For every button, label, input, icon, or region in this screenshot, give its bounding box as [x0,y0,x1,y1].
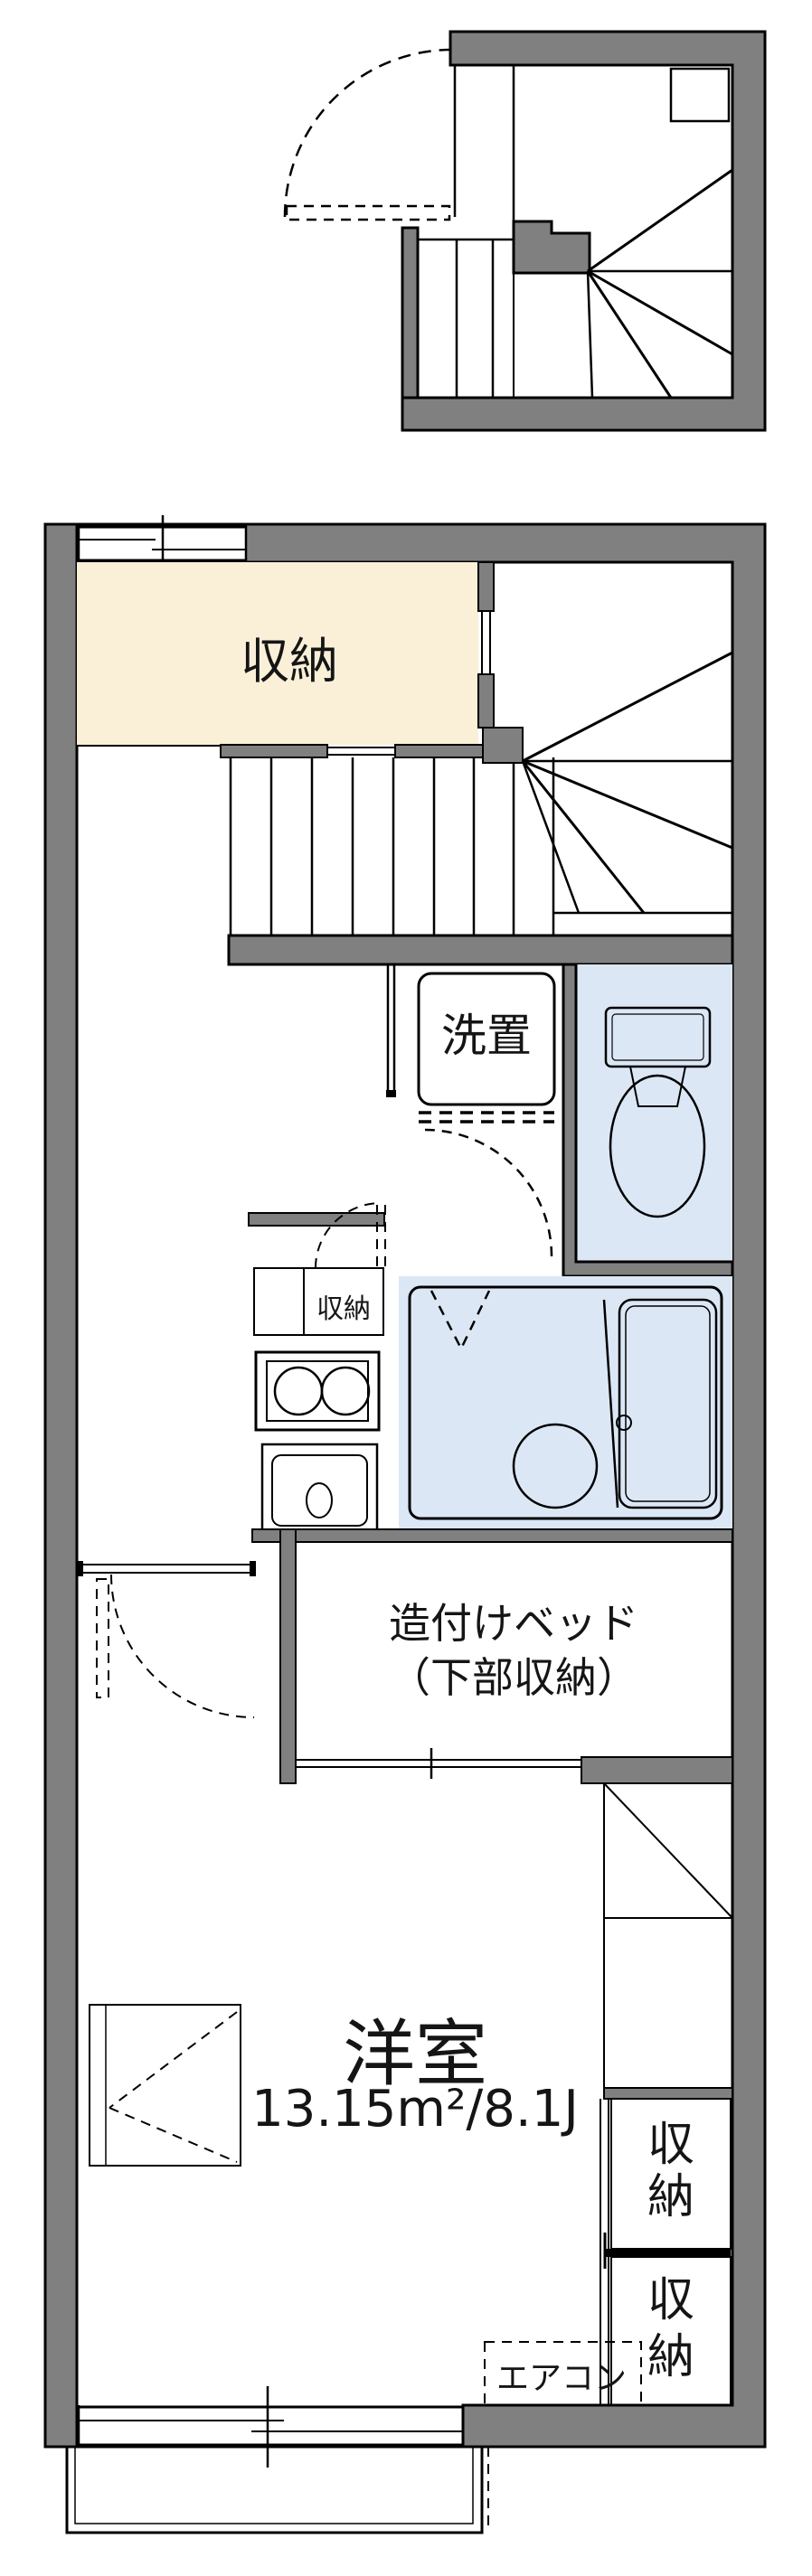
svg-text:納: 納 [647,2330,694,2384]
kitchen-top-wall [249,1213,384,1226]
entry-lower-left-wall [402,228,418,398]
stair-bottom-wall [229,935,732,964]
entrance-door-leaf [287,206,449,220]
closet-divider [604,2249,731,2257]
bay-window-box [90,2005,241,2166]
storage-right-wall-upper [478,562,494,611]
bed-label-line2: （下部収納） [389,1653,638,1702]
air-conditioner: エアコン [485,2342,641,2405]
washroom-left-wall [386,964,396,1097]
main-unit: 収納 [45,515,765,2533]
storage-right-wall-lower [478,674,494,728]
bathroom [399,1276,732,1529]
winder-steps [588,170,732,398]
entrance-door-swing-arc [285,50,452,217]
room-entry-opening [77,1561,256,1717]
closet-column: 収 納 収 納 [600,1783,732,2405]
room-door-swing-arc [111,1575,254,1717]
room-door-leaf [97,1579,109,1697]
bed-label-line1: 造付けベッド [389,1599,638,1648]
svg-text:納: 納 [647,2170,694,2224]
storage-room-label: 収納 [241,633,338,690]
laundry-label: 洗置 [441,1010,532,1062]
floorplan-page: { "document": { "type": "apartment-floor… [0,0,812,2576]
washroom-door-swing-arc [425,1130,552,1256]
stove [256,1352,379,1430]
closet-top-bar [604,2088,732,2099]
main-stair-newel [483,728,523,763]
stove-burner [275,1368,322,1415]
closet-diagonal [604,1783,732,1918]
kitchen-storage-label: 収納 [316,1293,371,1325]
kitchen-sink [262,1444,377,1534]
closet-upper-label: 収 [647,2118,694,2172]
stair-newel-block [514,221,590,273]
balcony [67,2447,488,2533]
left-outer-wall [45,524,77,2447]
sink-drain [307,1483,332,1518]
bed-front-edge [296,1748,581,1779]
bottom-sliding-window [79,2386,463,2468]
bed-left-wall [280,1529,296,1783]
stove-burner [322,1368,369,1415]
kitchen-cabinet [254,1268,304,1335]
aircon-label: エアコン [496,2360,627,2397]
stair-top-wall-left [221,745,327,757]
closet-lower-label: 収 [647,2273,694,2327]
storage-right-door-gap [482,611,490,674]
stair-flight [231,757,553,935]
entry-shoe-cabinet [671,69,729,121]
stair-top-wall-right [395,745,483,757]
floor-plan-canvas: 収納 [0,0,812,2576]
room-area-label: 13.15m²/8.1J [251,2080,579,2139]
bed-room: 造付けベッド （下部収納） [389,1599,638,1702]
bath-bed-wall [252,1529,732,1542]
bed-bottom-wall [581,1757,732,1783]
entry-stair-section [285,32,765,430]
